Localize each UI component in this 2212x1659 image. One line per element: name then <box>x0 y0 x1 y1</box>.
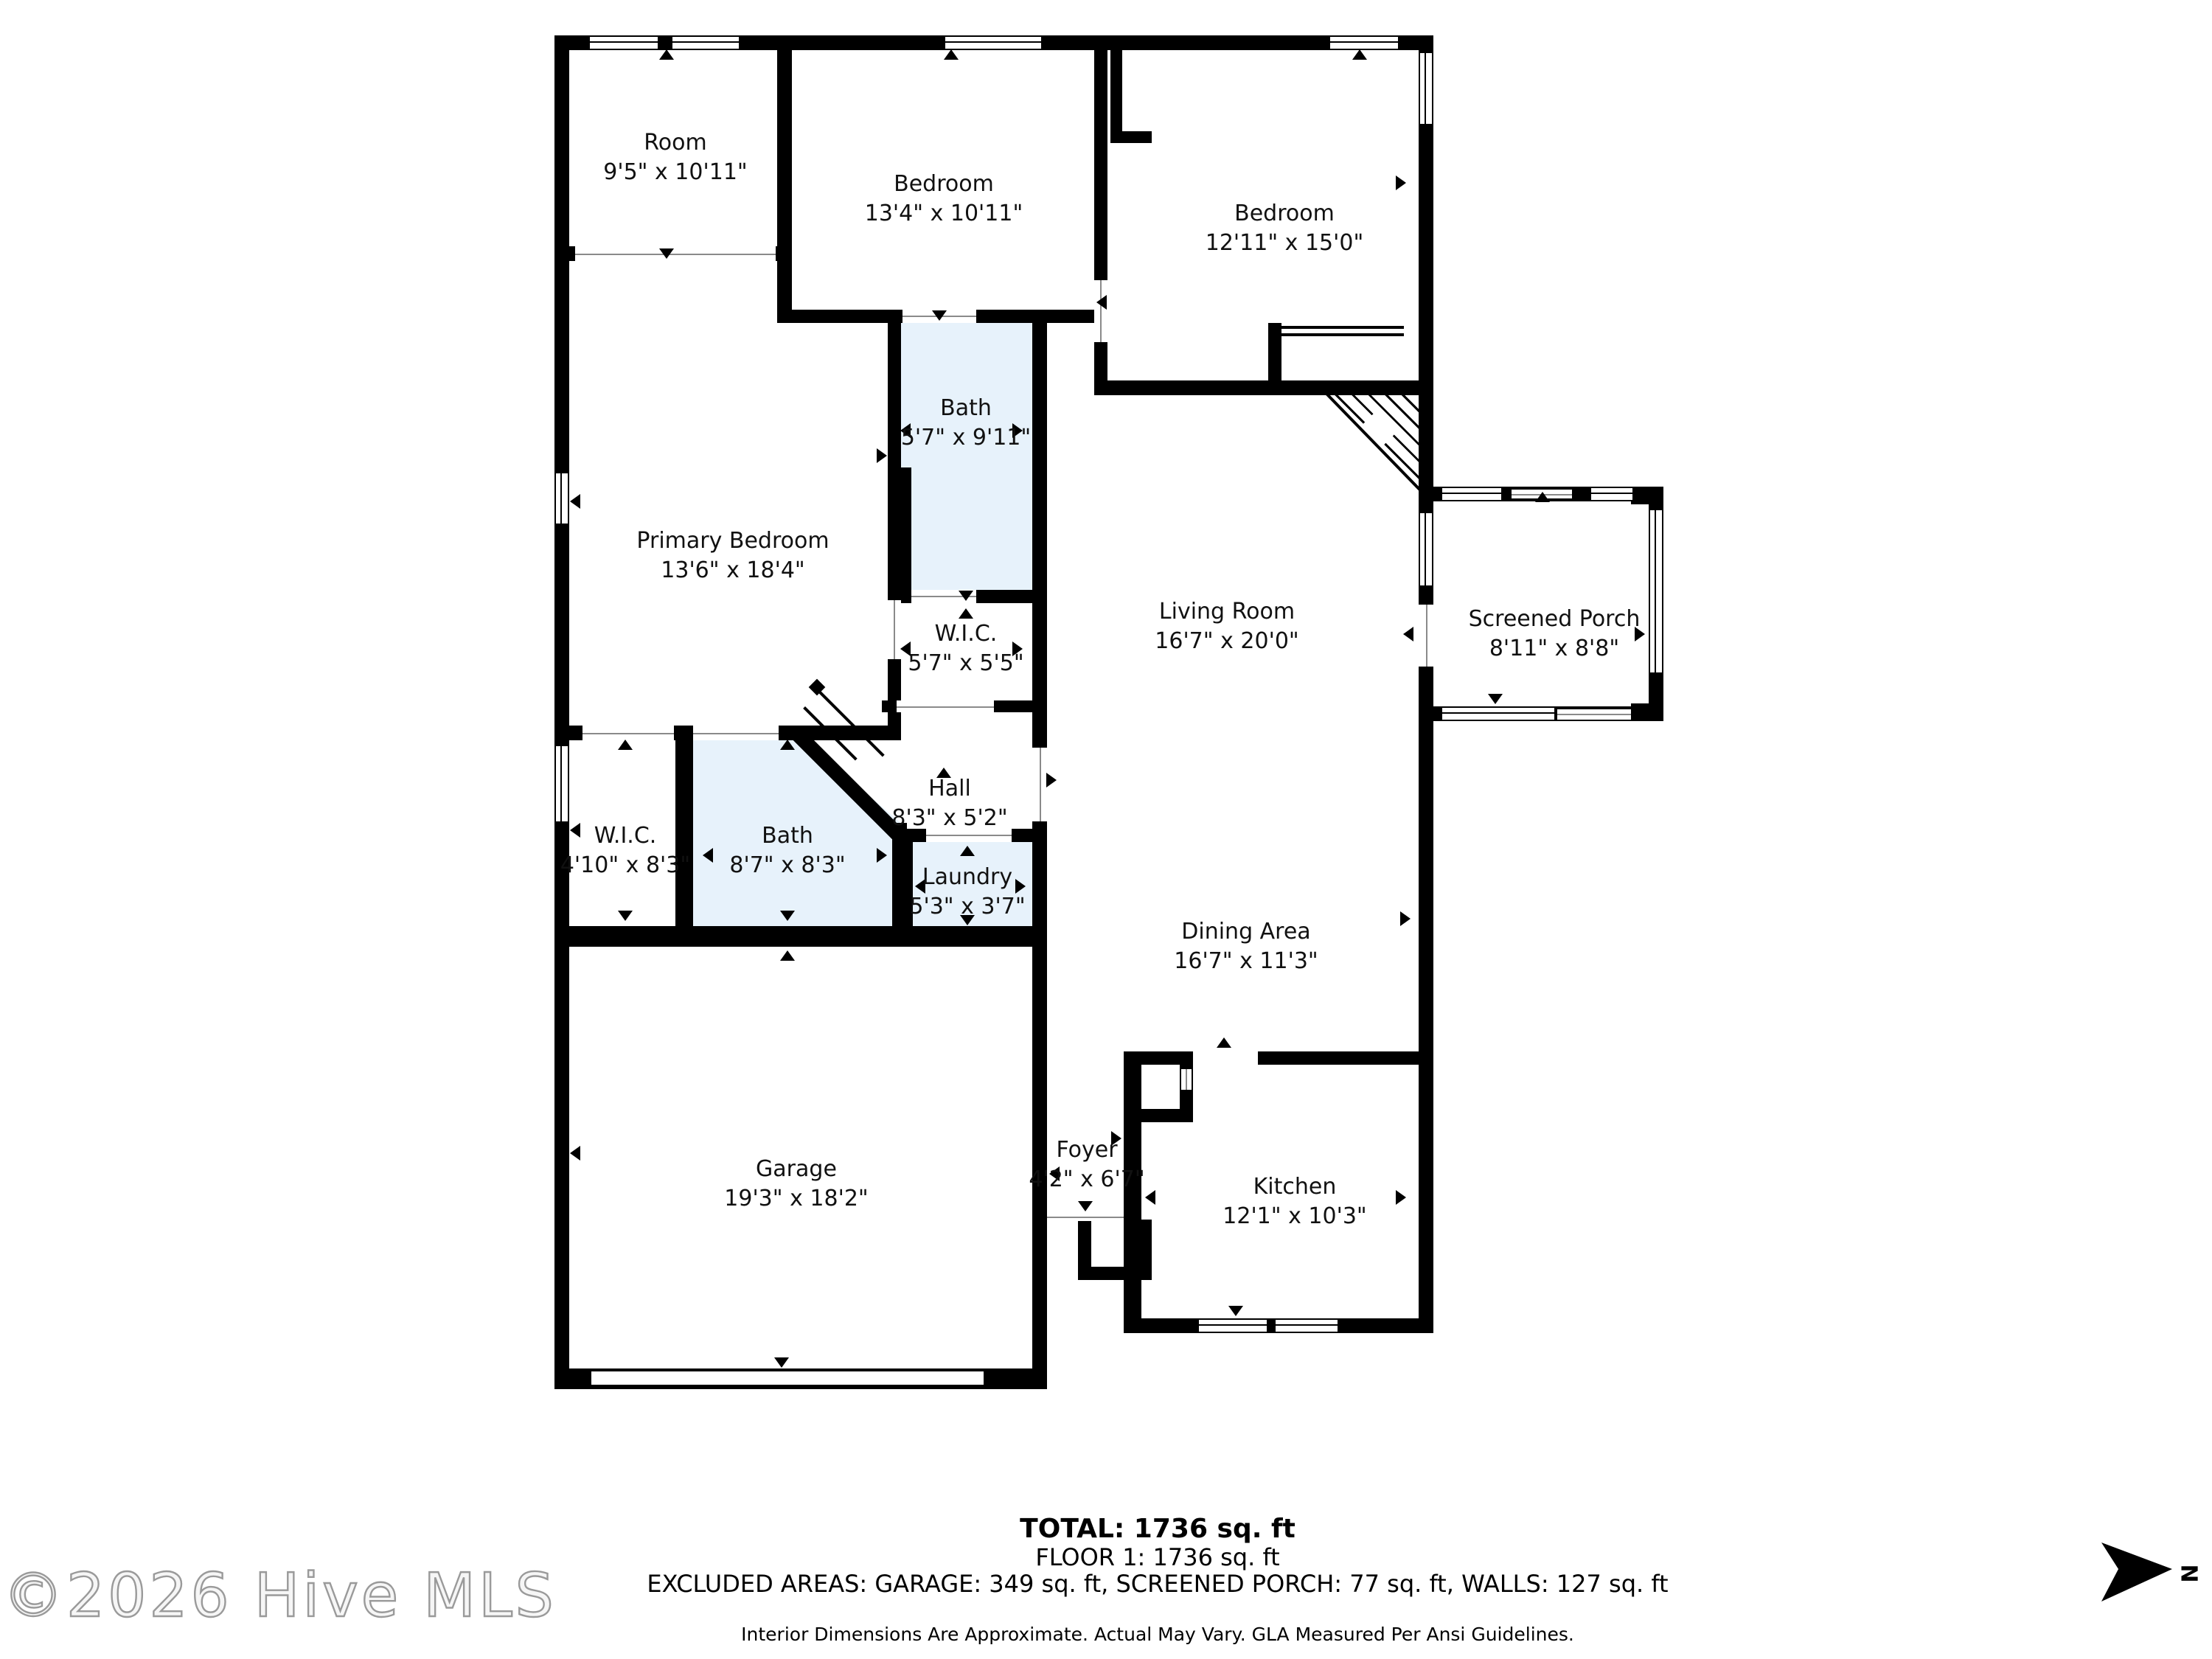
porch-screen-gap <box>1557 709 1631 720</box>
wall <box>554 926 1047 947</box>
room-label-dining-area: Dining Area 16'7" x 11'3" <box>1174 918 1318 975</box>
window <box>1274 1318 1339 1333</box>
marker-icon <box>1400 911 1411 926</box>
porch-post <box>1631 487 1663 504</box>
marker-icon <box>1396 1190 1406 1205</box>
room-label-screened-porch: Screened Porch 8'11" x 8'8" <box>1469 605 1641 663</box>
room-name: Living Room <box>1155 598 1298 627</box>
room-dims: 8'3" x 5'2" <box>891 804 1007 832</box>
room-label-wic1: W.I.C. 5'7" x 5'5" <box>908 620 1023 678</box>
room-name: Screened Porch <box>1469 605 1641 634</box>
wall <box>1110 131 1152 143</box>
floor-plan: Room 9'5" x 10'11" Bedroom 13'4" x 10'11… <box>0 0 2212 1659</box>
room-dims: 5'7" x 5'5" <box>908 649 1023 678</box>
marker-icon <box>780 950 795 961</box>
closet-shelf-line <box>1280 326 1404 329</box>
hall-diagonal-line <box>818 690 885 757</box>
door-opening <box>897 700 994 712</box>
summary-disclaimer: Interior Dimensions Are Approximate. Act… <box>741 1623 1574 1645</box>
window <box>1419 512 1433 587</box>
room-label-bath2: Bath 8'7" x 8'3" <box>729 822 845 880</box>
wall <box>1419 35 1433 1333</box>
window <box>588 35 659 50</box>
room-name: Bedroom <box>1206 200 1364 229</box>
room-name: Garage <box>724 1155 868 1184</box>
marker-icon <box>780 911 795 921</box>
closet-shelf-line <box>1280 333 1404 336</box>
room-dims: 9'5" x 10'11" <box>603 158 747 187</box>
room-name: Laundry <box>909 863 1025 892</box>
room-label-foyer: Foyer 4'2" x 6'7" <box>1029 1136 1144 1194</box>
marker-icon <box>570 1146 580 1161</box>
marker-icon <box>1228 1306 1243 1316</box>
marker-icon <box>774 1357 789 1368</box>
window <box>554 472 569 525</box>
room-name: Dining Area <box>1174 918 1318 947</box>
room-label-garage: Garage 19'3" x 18'2" <box>724 1155 868 1213</box>
room-dims: 13'6" x 18'4" <box>636 556 829 585</box>
marker-icon <box>944 49 959 60</box>
marker-icon <box>959 608 973 619</box>
room-name: Room <box>603 129 747 158</box>
door-opening <box>1032 748 1047 821</box>
room-label-primary-bedroom: Primary Bedroom 13'6" x 18'4" <box>636 527 829 585</box>
room-label-kitchen: Kitchen 12'1" x 10'3" <box>1222 1173 1366 1231</box>
summary-floor: FLOOR 1: 1736 sq. ft <box>1035 1543 1279 1571</box>
room-name: Kitchen <box>1222 1173 1366 1202</box>
marker-icon <box>1145 1190 1155 1205</box>
room-name: W.I.C. <box>908 620 1023 649</box>
front-door-opening <box>1047 1212 1124 1221</box>
room-dims: 5'3" x 3'7" <box>909 892 1025 921</box>
window <box>554 745 569 823</box>
north-arrow-icon <box>2101 1543 2172 1601</box>
marker-icon <box>932 310 947 321</box>
room-dims: 19'3" x 18'2" <box>724 1184 868 1213</box>
room-dims: 4'10" x 8'3" <box>560 851 690 880</box>
window <box>671 35 740 50</box>
door-opening <box>582 726 674 740</box>
room-label-living-room: Living Room 16'7" x 20'0" <box>1155 598 1298 655</box>
room-label-bedroom3: Bedroom 12'11" x 15'0" <box>1206 200 1364 257</box>
marker-icon <box>659 49 674 60</box>
room-label-bath1: Bath 5'7" x 9'11" <box>901 394 1031 452</box>
floor-plan-page: Room 9'5" x 10'11" Bedroom 13'4" x 10'11… <box>0 0 2212 1659</box>
cased-opening <box>575 246 776 261</box>
door-opening <box>888 600 901 659</box>
room-dims: 5'7" x 9'11" <box>901 423 1031 452</box>
porch-screen <box>1441 487 1503 501</box>
marker-icon <box>618 740 633 750</box>
marker-icon <box>1078 1201 1093 1211</box>
room-dims: 8'7" x 8'3" <box>729 851 845 880</box>
room-label-room: Room 9'5" x 10'11" <box>603 129 747 187</box>
pantry-door-opening <box>1181 1069 1192 1090</box>
room-name: Bath <box>901 394 1031 423</box>
porch-post <box>1631 703 1663 721</box>
room-name: Hall <box>891 775 1007 804</box>
room-dims: 13'4" x 10'11" <box>865 199 1023 228</box>
room-label-wic2: W.I.C. 4'10" x 8'3" <box>560 822 690 880</box>
room-name: Bedroom <box>865 170 1023 199</box>
room-label-bedroom2: Bedroom 13'4" x 10'11" <box>865 170 1023 228</box>
porch-post <box>1572 487 1585 501</box>
window <box>1419 52 1433 125</box>
window <box>1197 1318 1268 1333</box>
summary-total: TOTAL: 1736 sq. ft <box>1020 1514 1295 1545</box>
marker-icon <box>1396 175 1406 190</box>
marker-icon <box>1403 627 1413 641</box>
room-label-hall: Hall 8'3" x 5'2" <box>891 775 1007 832</box>
wall <box>1258 1051 1433 1065</box>
door-opening <box>1094 280 1107 342</box>
wall <box>1094 35 1107 280</box>
marker-icon <box>1352 49 1367 60</box>
wall <box>777 35 792 323</box>
summary-excluded-areas: EXCLUDED AREAS: GARAGE: 349 sq. ft, SCRE… <box>647 1570 1668 1598</box>
wall <box>1094 380 1433 395</box>
wall <box>1078 1267 1152 1280</box>
bath1-fill <box>894 316 1041 599</box>
marker-icon <box>1096 295 1107 310</box>
door-opening <box>1419 605 1433 667</box>
garage-door <box>591 1370 984 1386</box>
room-dims: 4'2" x 6'7" <box>1029 1165 1144 1194</box>
marker-icon <box>618 911 633 921</box>
marker-icon <box>570 494 580 509</box>
room-name: Bath <box>729 822 845 851</box>
marker-icon <box>1535 492 1550 502</box>
room-name: Primary Bedroom <box>636 527 829 556</box>
wall <box>888 467 911 600</box>
marker-icon <box>959 591 973 601</box>
marker-icon <box>877 848 887 863</box>
marker-icon <box>1217 1037 1231 1048</box>
window <box>944 35 1043 50</box>
marker-icon <box>703 848 713 863</box>
marker-icon <box>1046 773 1057 787</box>
room-dims: 8'11" x 8'8" <box>1469 634 1641 663</box>
north-label: N <box>2176 1564 2202 1582</box>
marker-icon <box>1488 694 1503 704</box>
porch-screen <box>1441 706 1556 721</box>
room-dims: 16'7" x 20'0" <box>1155 627 1298 655</box>
room-label-laundry: Laundry 5'3" x 3'7" <box>909 863 1025 921</box>
marker-icon <box>877 448 887 463</box>
room-dims: 12'1" x 10'3" <box>1222 1202 1366 1231</box>
room-dims: 16'7" x 11'3" <box>1174 947 1318 975</box>
watermark: ©2026 Hive MLS <box>3 1560 557 1631</box>
wall <box>1110 35 1122 143</box>
window <box>1329 35 1399 50</box>
room-name: W.I.C. <box>560 822 690 851</box>
marker-icon <box>780 740 795 750</box>
wall <box>1032 310 1047 1389</box>
wall <box>554 35 569 1389</box>
marker-icon <box>960 846 975 856</box>
porch-screen <box>1649 509 1663 674</box>
door-opening <box>693 726 779 740</box>
room-dims: 12'11" x 15'0" <box>1206 229 1364 257</box>
room-name: Foyer <box>1029 1136 1144 1165</box>
marker-icon <box>659 248 674 259</box>
porch-screen <box>1590 487 1634 501</box>
